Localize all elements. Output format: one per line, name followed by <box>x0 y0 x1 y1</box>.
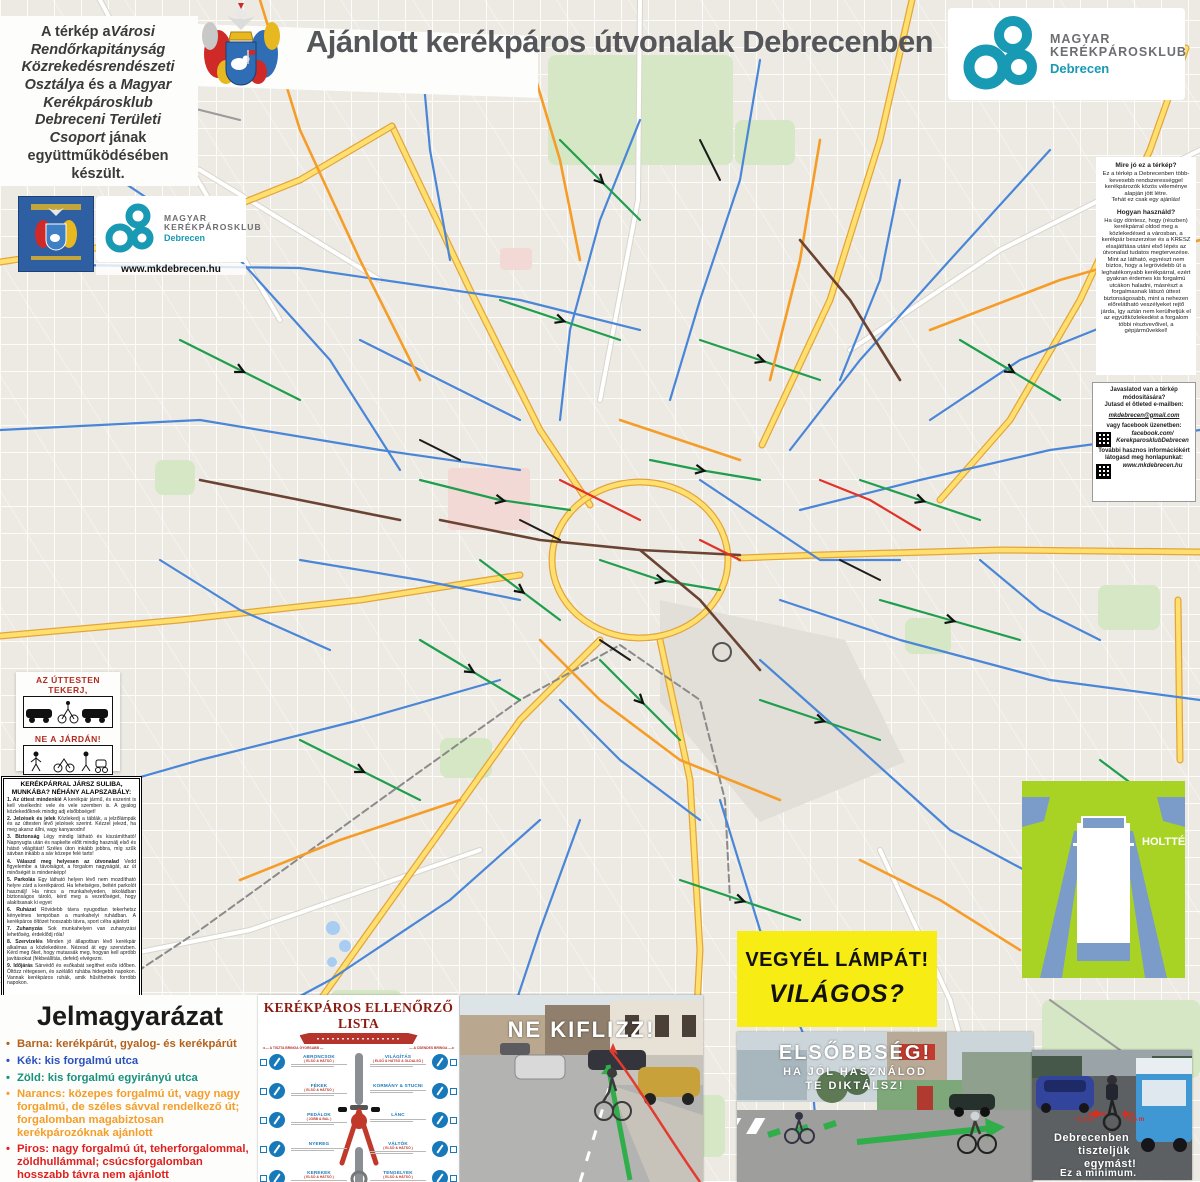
respect-line1: Debrecenben <box>1054 1132 1129 1144</box>
legend-item: •Barna: kerékpárút, gyalog- és kerékpárú… <box>6 1038 254 1051</box>
legend-box: Jelmagyarázat •Barna: kerékpárút, gyalog… <box>0 995 258 1182</box>
prio-line3: TE DIKTÁLSZ! <box>737 1080 973 1092</box>
cartoon-bottom-text: NE A JÁRDÁN! <box>20 734 116 744</box>
poster-title: Ajánlott kerékpáros útvonalak Debrecenbe… <box>292 24 947 60</box>
checklist-row: FÉKEK( ELSŐ & HÁTSÓ )KORMÁNY & STUCNI <box>258 1082 459 1108</box>
cartoon-top-text: AZ ÚTTESTEN TEKERJ, <box>20 675 116 695</box>
check-item-icon <box>432 1083 448 1099</box>
check-square[interactable] <box>450 1175 457 1182</box>
kifli-text: NE KIFLIZZ! <box>460 1017 703 1043</box>
checklist-item: PEDÁLOK( JOBB & BAL ) <box>260 1111 352 1137</box>
checklist-row: PEDÁLOK( JOBB & BAL )LÁNC <box>258 1111 459 1137</box>
checklist-row: KEREKEK( ELSŐ & HÁTSÓ )TENGELYEK( ELSŐ &… <box>258 1169 459 1182</box>
lamp-line2: VILÁGOS? <box>769 980 905 1009</box>
info-q2-text: Ha úgy döntesz, hogy (részben) kerékpárr… <box>1100 218 1192 335</box>
check-square[interactable] <box>450 1059 457 1066</box>
contact-email-link[interactable]: mkdebrecen@gmail.com <box>1096 413 1192 421</box>
rule-item: 1. Az úttest mindenkié A kerékpár jármű,… <box>7 798 136 815</box>
legend-item: •Narancs: közepes forgalmú út, vagy nagy… <box>6 1088 254 1139</box>
info-q1-text: Ez a térkép a Debrecenben több-kevesebb … <box>1100 171 1192 197</box>
contact-line2: Jutasd el ötleted e-mailben: <box>1096 402 1192 410</box>
rule-item: 2. Jelzések és jelek Közlekedj a táblák,… <box>7 817 136 834</box>
checklist-title: KERÉKPÁROS ELLENŐRZŐ LISTA <box>258 1000 459 1032</box>
legend-item: •Kék: kis forgalmú utca <box>6 1055 254 1068</box>
checklist-item: TENGELYEK( ELSŐ & HÁTSÓ ) <box>365 1169 457 1182</box>
rules-title: KERÉKPÁRRAL JÁRSZ SULIBA, MUNKÁBA? NÉHÁN… <box>7 781 136 796</box>
checklist-item: FÉKEK( ELSŐ & HÁTSÓ ) <box>260 1082 352 1108</box>
check-square[interactable] <box>260 1146 267 1153</box>
priority-photo: ELSŐBBSÉG! HA JÓL HASZNÁLOD TE DIKTÁLSZ! <box>737 1032 1033 1182</box>
contact-more: További hasznos információkért látogasd … <box>1096 448 1192 463</box>
info-box: Mire jó ez a térkép? Ez a térkép a Debre… <box>1096 157 1196 375</box>
check-item-icon <box>432 1054 448 1070</box>
cartoon-cars-bike-drawing <box>23 696 113 728</box>
checklist-item: NYEREG <box>260 1140 352 1166</box>
legend-item: •Piros: nagy forgalmú út, teherforgalomm… <box>6 1143 254 1181</box>
rule-item: 7. Zuhanyzás Sok munkahelyen van zuhanyz… <box>7 927 136 938</box>
flag-crest <box>31 204 81 264</box>
check-square[interactable] <box>260 1117 267 1124</box>
svg-text:HOLTTÉR!: HOLTTÉR! <box>1142 835 1185 848</box>
qr-code-facebook <box>1096 432 1111 447</box>
blind-spot-diagram: HOLTTÉR! <box>1022 781 1185 978</box>
check-item-icon <box>269 1083 285 1099</box>
road-not-sidewalk-cartoon: AZ ÚTTESTEN TEKERJ, NE A JÁRDÁN! <box>16 672 120 771</box>
qr-code-website <box>1096 464 1111 479</box>
respect-line4: Ez a minimum. <box>1060 1168 1137 1179</box>
debrecen-flag <box>18 196 94 272</box>
cartoon-pedestrians-drawing <box>23 745 113 775</box>
rule-item: 8. Szervizelés Minden jó állapotban lévő… <box>7 940 136 963</box>
check-item-icon <box>432 1112 448 1128</box>
check-square[interactable] <box>260 1088 267 1095</box>
mk-rings-icon <box>956 13 1042 95</box>
rule-item: 6. Ruházat Rövidebb távra nyugodtan teke… <box>7 908 136 925</box>
prio-line1: ELSŐBBSÉG! <box>737 1042 973 1065</box>
respect-distance-photo: ~1,5 m ~0,5 m Debrecenben tiszteljük egy… <box>1032 1050 1192 1180</box>
mk-name-2: KERÉKPÁROSKLUB <box>1050 46 1187 59</box>
check-square[interactable] <box>450 1088 457 1095</box>
contact-fb-label: vagy facebook üzenetben: <box>1096 423 1192 431</box>
debrecen-coat-of-arms <box>196 2 286 97</box>
checklist-arrow-left-label: ◄— A TISZTA BRINGA GYORSABB — <box>262 1046 323 1050</box>
mk-logo-left: MAGYAR KERÉKPÁROSKLUB Debrecen <box>96 196 246 262</box>
mk-website-link[interactable]: www.mkdebrecen.hu <box>96 264 246 275</box>
checklist-row: NYEREGVÁLTÓK( ELSŐ & HÁTSÓ ) <box>258 1140 459 1166</box>
checklist-item: KEREKEK( ELSŐ & HÁTSÓ ) <box>260 1169 352 1182</box>
check-item-icon <box>269 1112 285 1128</box>
check-square[interactable] <box>450 1117 457 1124</box>
checklist-arrow-right-label: — A CSENDES BRINGA —► <box>409 1046 455 1050</box>
ne-kiflizz-photo: NE KIFLIZZ! <box>460 995 703 1182</box>
check-square[interactable] <box>450 1146 457 1153</box>
rule-item: 4. Válaszd meg helyesen az útvonalad Ved… <box>7 860 136 877</box>
legend-list: •Barna: kerékpárút, gyalog- és kerékpárú… <box>6 1038 254 1182</box>
mk-city: Debrecen <box>164 234 262 243</box>
mk-name-1: MAGYAR <box>1050 33 1187 46</box>
rules-list: 1. Az úttest mindenkié A kerékpár jármű,… <box>7 798 136 987</box>
checklist-item: ABRONCSOK( ELSŐ & HÁTSÓ ) <box>260 1053 352 1079</box>
checklist-item: VILÁGÍTÁS( ELSŐ & HÁTSÓ & OLDALSÓ ) <box>365 1053 457 1079</box>
check-item-icon <box>432 1141 448 1157</box>
credit-box: A térkép aVárosi Rendőrkapitányság Közre… <box>8 24 188 184</box>
prio-line2: HA JÓL HASZNÁLOD <box>737 1066 973 1078</box>
mk-logo-top: MAGYAR KERÉKPÁROSKLUB Debrecen <box>948 8 1185 100</box>
mk-name-2: KERÉKPÁROSKLUB <box>164 223 262 232</box>
mk-city: Debrecen <box>1050 62 1187 76</box>
check-item-icon <box>432 1170 448 1182</box>
checklist-item: VÁLTÓK( ELSŐ & HÁTSÓ ) <box>365 1140 457 1166</box>
basic-rules-box: KERÉKPÁRRAL JÁRSZ SULIBA, MUNKÁBA? NÉHÁN… <box>1 776 142 1003</box>
info-q2-title: Hogyan használd? <box>1100 209 1192 216</box>
checklist-row: ABRONCSOK( ELSŐ & HÁTSÓ )VILÁGÍTÁS( ELSŐ… <box>258 1053 459 1079</box>
check-item-icon <box>269 1054 285 1070</box>
info-q1-tail: Tehát ez csak egy ajánlás! <box>1100 197 1192 203</box>
buy-a-lamp-banner: VEGYÉL LÁMPÁT! VILÁGOS? <box>737 931 937 1027</box>
legend-item: •Zöld: kis forgalmú egyirányú utca <box>6 1072 254 1085</box>
check-square[interactable] <box>260 1059 267 1066</box>
distance-right-label: ~0,5 m <box>1124 1116 1144 1123</box>
check-item-icon <box>269 1170 285 1182</box>
blind-spot-drawing: HOLTTÉR! <box>1022 781 1185 978</box>
lamp-line1: VEGYÉL LÁMPÁT! <box>745 949 928 972</box>
checklist-grid: ABRONCSOK( ELSŐ & HÁTSÓ )VILÁGÍTÁS( ELSŐ… <box>258 1051 459 1182</box>
check-square[interactable] <box>260 1175 267 1182</box>
rule-item: 9. Időjárás Sárvédő és esőkabát segíthet… <box>7 964 136 987</box>
bike-checklist-panel: KERÉKPÁROS ELLENŐRZŐ LISTA ◄— A TISZTA B… <box>258 995 459 1182</box>
checklist-ribbon <box>300 1033 418 1044</box>
respect-line2: tiszteljük <box>1078 1145 1130 1157</box>
mk-rings-icon-small <box>100 201 156 257</box>
credit-text-2: és a <box>84 77 120 93</box>
rule-item: 5. Parkolás Egy látható helyen lévő nem … <box>7 878 136 907</box>
checklist-item: KORMÁNY & STUCNI <box>365 1082 457 1108</box>
info-q1-title: Mire jó ez a térkép? <box>1100 162 1192 169</box>
checklist-item: LÁNC <box>365 1111 457 1137</box>
legend-title: Jelmagyarázat <box>6 1001 254 1032</box>
rule-item: 3. Biztonság Légy mindig látható és kisz… <box>7 835 136 858</box>
poster: A térkép aVárosi Rendőrkapitányság Közre… <box>0 0 1200 1182</box>
contact-line1: Javaslatod van a térkép módosítására? <box>1096 387 1192 402</box>
credit-text: A térkép a <box>41 24 111 40</box>
contact-box: Javaslatod van a térkép módosítására? Ju… <box>1092 382 1196 502</box>
check-item-icon <box>269 1141 285 1157</box>
distance-left-label: ~1,5 m <box>1074 1116 1094 1123</box>
